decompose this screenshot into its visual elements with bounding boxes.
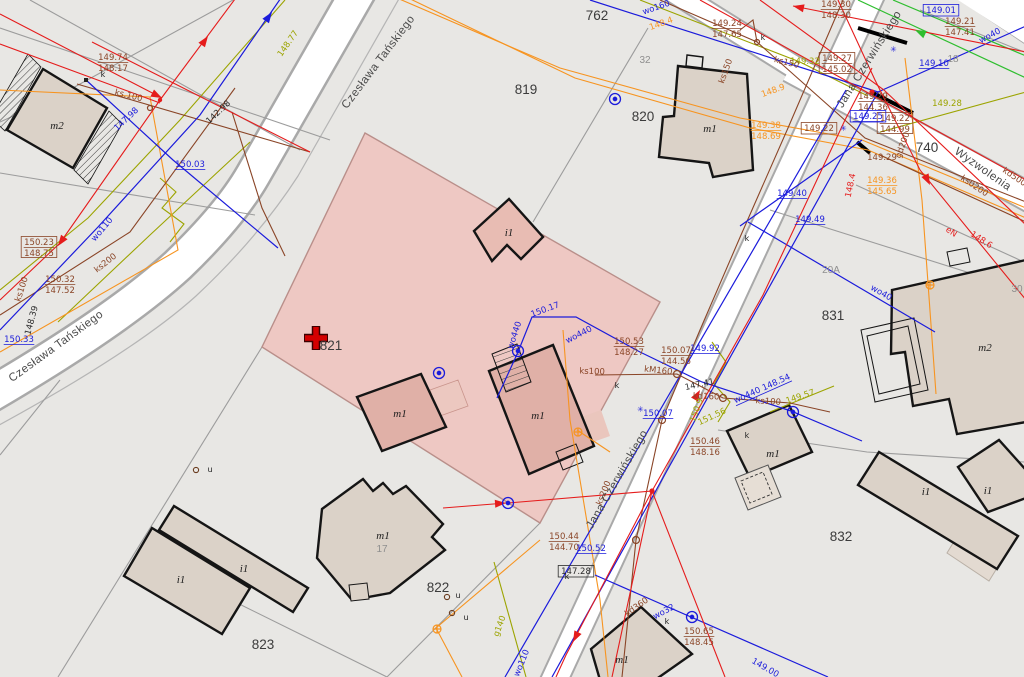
parcel-label-30: 30: [1011, 284, 1023, 295]
svg-text:144.56: 144.56: [661, 357, 691, 367]
building-label: i1: [240, 563, 249, 575]
map-annotation: 149.01: [923, 5, 959, 17]
parcel-label-17: 17: [376, 544, 388, 555]
map-annotation: 149.92: [690, 344, 721, 354]
svg-text:148.16: 148.16: [690, 448, 720, 458]
map-annotation: 147.28: [558, 566, 594, 578]
map-annotation: 149.29144.36: [858, 92, 889, 113]
building-label: i1: [177, 574, 186, 586]
map-annotation: 150.65148.45: [684, 627, 715, 648]
node-point: [84, 78, 88, 82]
svg-text:150.32: 150.32: [45, 275, 75, 285]
svg-text:149.24: 149.24: [712, 19, 742, 29]
parcel-label-831: 831: [822, 308, 845, 323]
svg-text:149.36: 149.36: [867, 176, 897, 186]
point-mark-k: k: [761, 33, 766, 42]
map-annotation: 149.28: [932, 99, 962, 109]
svg-text:149.22: 149.22: [880, 114, 910, 124]
map-annotation: 149.38148.69: [751, 121, 782, 142]
map-annotation: ks100: [755, 396, 781, 408]
svg-text:145.65: 145.65: [867, 187, 897, 197]
map-annotation: 150.33: [4, 335, 35, 345]
svg-text:149.28: 149.28: [932, 99, 962, 109]
map-annotation: 149.22: [801, 123, 837, 135]
parcel-label-20A: 20A: [822, 265, 840, 276]
power-pole: [649, 488, 654, 493]
building-step: [349, 583, 369, 601]
building-label: m1: [393, 408, 406, 420]
building-label: m1: [615, 654, 628, 666]
building-label: m1: [531, 410, 544, 422]
map-annotation: 149.25: [850, 111, 886, 123]
svg-text:149.38: 149.38: [751, 121, 781, 131]
svg-text:✳: ✳: [890, 45, 897, 54]
svg-text:148.27: 148.27: [614, 348, 644, 358]
parcel-label-820: 820: [632, 109, 655, 124]
svg-text:149.01: 149.01: [926, 6, 956, 16]
building-label: i1: [505, 227, 514, 239]
svg-text:150.46: 150.46: [690, 437, 720, 447]
map-annotation: 150.46148.16: [690, 437, 721, 458]
map-annotation: 150.44144.70: [549, 532, 580, 553]
cadastral-map[interactable]: ✳✳✳ 149.74148.17150.23148.75150.32147.52…: [0, 0, 1024, 677]
point-mark-k: k: [615, 381, 620, 390]
map-annotation: 150.53148.27: [614, 337, 645, 358]
map-annotation: 149.36145.65: [867, 176, 898, 197]
map-annotation: 149.10: [919, 59, 950, 69]
svg-text:148.45: 148.45: [684, 638, 714, 648]
parcel-label-823: 823: [252, 637, 275, 652]
parcel-label-821: 821: [320, 338, 343, 353]
svg-text:150.53: 150.53: [614, 337, 644, 347]
parcel-label-32: 32: [639, 55, 651, 66]
map-annotation: 149.21147.41: [945, 17, 976, 38]
svg-text:ks100: ks100: [755, 396, 781, 408]
parcel-label-819: 819: [515, 82, 538, 97]
point-mark-u: u: [207, 465, 212, 474]
map-viewport[interactable]: ✳✳✳ 149.74148.17150.23148.75150.32147.52…: [0, 0, 1024, 677]
map-annotation: 149.40: [777, 189, 808, 199]
map-annotation: 149.30148.30: [821, 0, 852, 21]
map-annotation: 149.49: [795, 215, 826, 225]
map-annotation: 150.03: [175, 160, 206, 170]
svg-text:150.07: 150.07: [643, 409, 673, 419]
building-label: i1: [984, 485, 993, 497]
map-annotation: 149.29: [867, 153, 897, 163]
point-mark-k: k: [745, 234, 750, 243]
parcel-label-762: 762: [586, 8, 609, 23]
svg-text:149.22: 149.22: [804, 124, 834, 134]
svg-text:147.52: 147.52: [45, 286, 75, 296]
building-label: m2: [50, 120, 64, 132]
building-label: i1: [922, 486, 931, 498]
svg-text:149.10: 149.10: [919, 59, 949, 69]
svg-text:149.25: 149.25: [853, 112, 883, 122]
map-annotation: 150.52: [576, 544, 607, 554]
point-mark-k: k: [101, 70, 106, 79]
svg-text:150.65: 150.65: [684, 627, 714, 637]
svg-text:149.21: 149.21: [945, 17, 975, 27]
building-label: m1: [376, 530, 389, 542]
map-annotation: 150.07144.56: [661, 346, 692, 367]
parcel-label-822: 822: [427, 580, 450, 595]
point-mark-u: u: [455, 591, 460, 600]
svg-text:149.74: 149.74: [98, 53, 128, 63]
svg-text:kd160: kd160: [693, 392, 720, 403]
svg-text:147.41: 147.41: [945, 28, 975, 38]
svg-text:150.52: 150.52: [576, 544, 606, 554]
svg-text:148.30: 148.30: [821, 11, 851, 21]
building-label: m2: [978, 342, 992, 354]
map-annotation: 150.32147.52: [45, 275, 76, 296]
svg-text:149.29: 149.29: [858, 92, 888, 102]
building-label: m1: [703, 123, 716, 135]
svg-text:149.30: 149.30: [821, 0, 851, 10]
svg-text:150.44: 150.44: [549, 532, 579, 542]
svg-text:149.27: 149.27: [822, 54, 852, 64]
svg-text:150.03: 150.03: [175, 160, 205, 170]
svg-text:149.29: 149.29: [867, 153, 897, 163]
svg-text:150.07: 150.07: [661, 346, 691, 356]
svg-text:144.70: 144.70: [549, 543, 579, 553]
power-pole: [158, 98, 162, 102]
map-annotation: 149.24147.65: [712, 19, 743, 40]
svg-text:✳: ✳: [840, 124, 847, 133]
svg-text:148.69: 148.69: [751, 132, 781, 142]
point-mark-k: k: [745, 431, 750, 440]
building-label: m1: [766, 448, 779, 460]
parcel-label-18: 18: [947, 54, 959, 65]
svg-text:149.40: 149.40: [777, 189, 807, 199]
point-mark-k: k: [565, 572, 570, 581]
svg-text:149.92: 149.92: [690, 344, 720, 354]
map-annotation: 150.07: [643, 409, 674, 419]
parcel-label-740: 740: [916, 140, 939, 155]
svg-text:149.49: 149.49: [795, 215, 825, 225]
map-annotation: ks100: [579, 367, 605, 378]
svg-text:147.65: 147.65: [712, 30, 742, 40]
parcel-label-832: 832: [830, 529, 853, 544]
point-mark-k: k: [665, 617, 670, 626]
map-annotation: 149.27145.02: [819, 53, 855, 76]
map-annotation: 150.23148.75: [21, 237, 57, 260]
svg-text:ks100: ks100: [579, 367, 605, 378]
svg-text:150.23: 150.23: [24, 238, 54, 248]
map-annotation: kd160: [693, 392, 720, 403]
point-mark-u: u: [463, 613, 468, 622]
svg-text:150.33: 150.33: [4, 335, 34, 345]
